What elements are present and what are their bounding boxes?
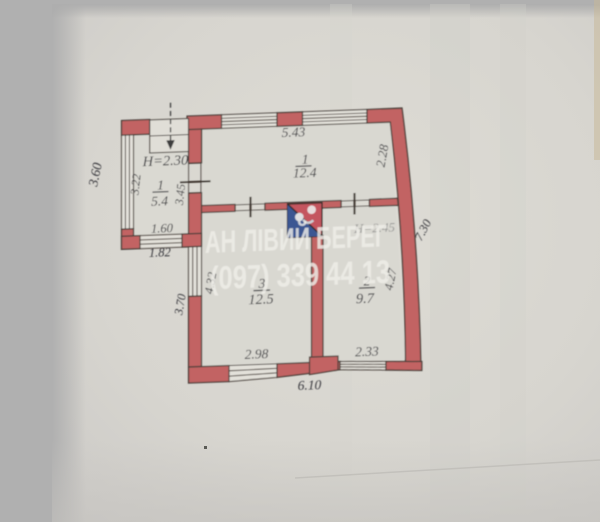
svg-text:1.60: 1.60 [151,221,174,236]
svg-text:3.22: 3.22 [127,173,143,196]
svg-text:5.43: 5.43 [282,124,306,140]
svg-text:12.4: 12.4 [293,165,317,181]
svg-text:2.33: 2.33 [355,343,379,359]
svg-text:2.98: 2.98 [245,346,269,362]
svg-text:3.45: 3.45 [172,183,188,206]
svg-text:АН ЛІВИЙ БЕРЕГ: АН ЛІВИЙ БЕРЕГ [205,217,387,260]
svg-text:5.4: 5.4 [151,193,168,209]
svg-text:1: 1 [157,177,164,192]
svg-text:1.82: 1.82 [149,245,171,260]
svg-text:6.10: 6.10 [298,377,322,393]
svg-text:Н=2.30: Н=2.30 [142,153,189,171]
svg-text:(097) 339 44 13: (097) 339 44 13 [210,254,390,297]
svg-text:9.7: 9.7 [356,291,375,308]
